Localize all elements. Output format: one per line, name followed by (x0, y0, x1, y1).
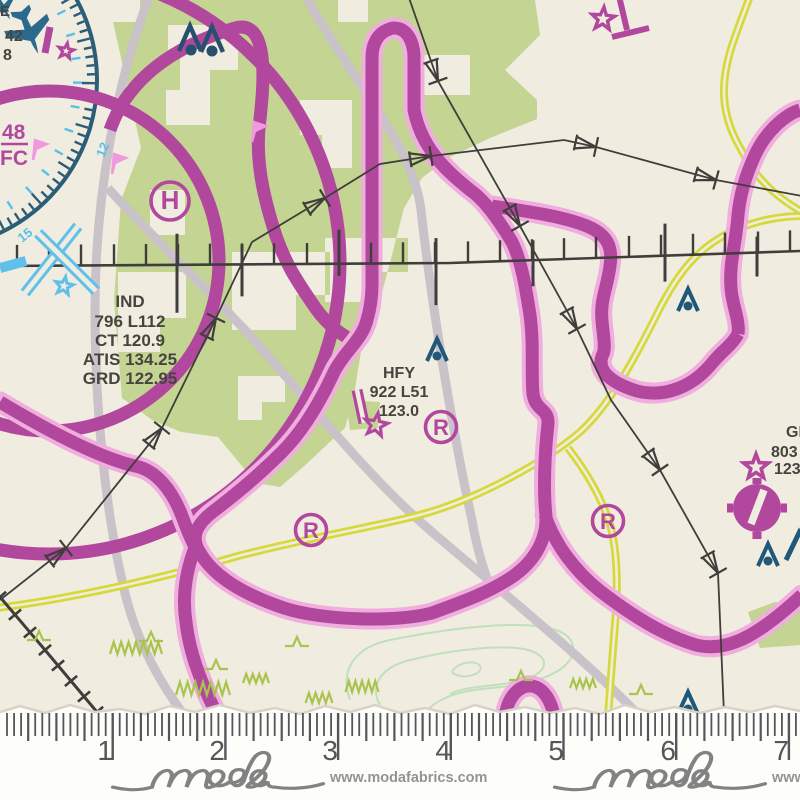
svg-text:803 L: 803 L (771, 444, 800, 461)
svg-text:R: R (433, 415, 449, 440)
svg-text:6: 6 (660, 735, 676, 766)
svg-text:R: R (303, 518, 319, 543)
svg-text:GE: GE (786, 424, 800, 441)
svg-text:42: 42 (5, 28, 23, 45)
svg-text:7: 7 (773, 735, 789, 766)
svg-text:3: 3 (322, 735, 338, 766)
svg-text:GRD 122.95: GRD 122.95 (83, 369, 178, 388)
svg-text:123: 123 (774, 461, 800, 478)
svg-text:922 L51: 922 L51 (370, 384, 429, 401)
svg-text:4: 4 (435, 735, 451, 766)
svg-text:1: 1 (97, 735, 113, 766)
svg-text:5: 5 (548, 735, 564, 766)
svg-text:CT 120.9: CT 120.9 (95, 331, 165, 350)
svg-text:IND: IND (115, 292, 144, 311)
svg-text:2: 2 (209, 735, 225, 766)
svg-text:www.modafabrics.com: www.modafabrics.com (771, 770, 800, 786)
svg-text:H: H (161, 185, 180, 215)
svg-text:48: 48 (2, 121, 26, 144)
svg-text:R: R (600, 509, 616, 534)
svg-text:796 L112: 796 L112 (95, 312, 166, 331)
svg-text:HFY: HFY (383, 365, 415, 382)
svg-text:www.modafabrics.com: www.modafabrics.com (329, 770, 487, 786)
svg-text:ATIS 134.25: ATIS 134.25 (83, 350, 177, 369)
svg-text:123.0: 123.0 (379, 403, 419, 420)
svg-text:E: E (0, 3, 10, 20)
svg-text:FC: FC (0, 147, 28, 170)
svg-text:8: 8 (3, 47, 12, 64)
